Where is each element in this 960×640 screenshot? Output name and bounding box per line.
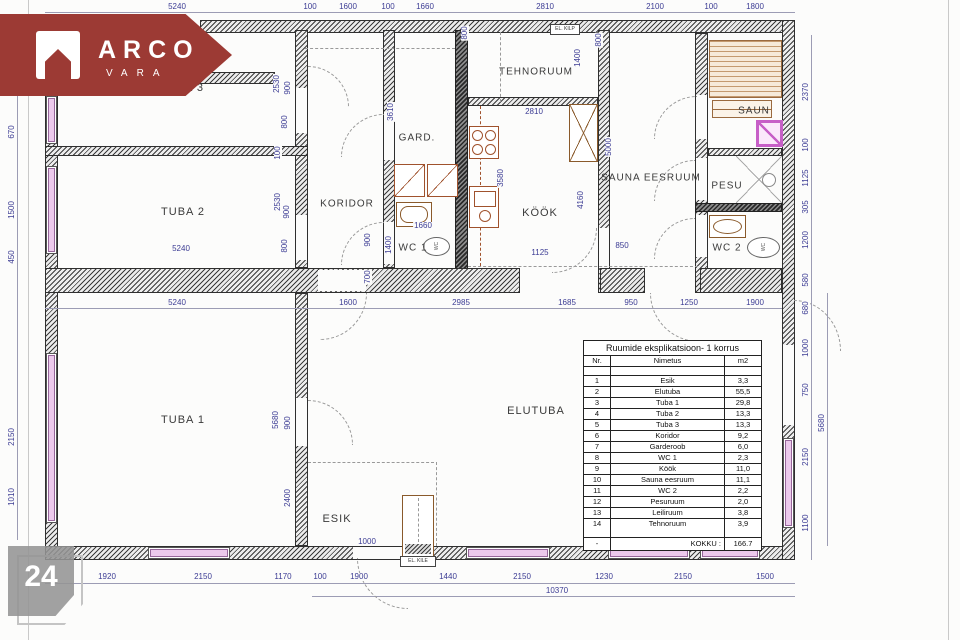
room-area: 11,1 (725, 475, 761, 485)
room-name: Elutuba (610, 387, 725, 397)
dimension-label: 1800 (745, 3, 765, 11)
dimension-label: 5240 (171, 245, 191, 253)
table-total-row: - KOKKU : 166.7 (584, 538, 761, 550)
dimension-label: 2150 (673, 573, 693, 581)
room-area: 2,3 (725, 453, 761, 463)
room-area: 6,0 (725, 442, 761, 452)
chimney-icon (402, 495, 434, 557)
dashed-line (305, 48, 455, 49)
table-row: 5Tuba 313,3 (584, 420, 761, 431)
window (46, 353, 57, 523)
room-nr: 8 (584, 453, 610, 463)
drawing-frame-line (28, 0, 29, 640)
dimension-label: 5240 (167, 3, 187, 11)
page-number-badge: 24 (8, 546, 74, 616)
dimension-label: 1660 (413, 222, 433, 230)
wall-segment (695, 203, 782, 212)
dimension-label: 100 (302, 3, 317, 11)
window (783, 438, 794, 528)
room-nr: 10 (584, 475, 610, 485)
drawing-frame-line (948, 0, 949, 640)
dimension-label: 850 (614, 242, 629, 250)
table-title: Ruumide eksplikatsioon- 1 korrus (584, 341, 761, 356)
room-area: 9,2 (725, 431, 761, 441)
total-label: KOKKU : (610, 538, 725, 550)
room-name: Tuba 3 (610, 420, 725, 430)
dashed-line (468, 266, 698, 267)
sauna-heater-icon (756, 120, 783, 147)
dimension-label: 2150 (8, 427, 16, 447)
dimension-label: 450 (8, 249, 16, 264)
door-arc (341, 114, 384, 157)
table-row: 1Esik3,3 (584, 376, 761, 387)
room-area: 3,3 (725, 376, 761, 386)
dimension-label: 1000 (357, 538, 377, 546)
table-row: 6Koridor9,2 (584, 431, 761, 442)
dimension-label: 2530 (274, 192, 282, 212)
arco-vara-logo: ARCO VARA (0, 14, 232, 96)
table-row: 2Elutuba55,5 (584, 387, 761, 398)
room-label-elutuba: ELUTUBA (507, 405, 565, 417)
room-name: Garderoob (610, 442, 725, 452)
dimension-label: 1660 (415, 3, 435, 11)
dimension-label: 3580 (497, 168, 505, 188)
room-label-pesu: PESU (711, 181, 742, 192)
dimension-label: 1900 (745, 299, 765, 307)
table-blank-row (584, 367, 761, 376)
room-nr: 7 (584, 442, 610, 452)
room-area: 55,5 (725, 387, 761, 397)
room-name: Koridor (610, 431, 725, 441)
dimension-label: 1000 (802, 338, 810, 358)
dimension-line (17, 96, 18, 540)
dimension-label: 2985 (451, 299, 471, 307)
house-icon (36, 31, 80, 79)
room-explication-table: Ruumide eksplikatsioon- 1 korrus Nr. Nim… (583, 340, 762, 551)
room-nr: 2 (584, 387, 610, 397)
floor-plan-canvas: WC WC EL. KILP EL. KILE ARCO VARA 24 Ruu… (0, 0, 960, 640)
table-row: 12Pesuruum2,0 (584, 497, 761, 508)
dimension-label: 700 (364, 269, 372, 284)
wall-segment (600, 268, 645, 293)
room-nr: 1 (584, 376, 610, 386)
room-name: Leiliruum (610, 508, 725, 518)
dimension-label: 900 (284, 80, 292, 95)
dimension-label: 100 (274, 145, 282, 160)
wall-segment (45, 146, 308, 156)
table-row: 13Leiliruum3,8 (584, 508, 761, 519)
door-opening (696, 215, 707, 257)
wall-segment (700, 268, 782, 293)
room-name: Esik (610, 376, 725, 386)
table-header-row: Nr. Nimetus m2 (584, 356, 761, 367)
toilet-label: WC (434, 242, 440, 250)
dimension-label: 1900 (349, 573, 369, 581)
dimension-label: 2100 (645, 3, 665, 11)
room-nr: 14 (584, 519, 610, 529)
page-number: 24 (8, 560, 74, 594)
window (148, 547, 230, 559)
kitchen-sink-icon (469, 186, 499, 228)
dimension-label: 750 (802, 382, 810, 397)
dimension-label: 1100 (802, 513, 810, 532)
dimension-label: 4160 (577, 190, 585, 210)
table-row: 10Sauna eesruum11,1 (584, 475, 761, 486)
dimension-label: 2810 (524, 108, 544, 116)
table-row: 4Tuba 213,3 (584, 409, 761, 420)
dimension-label: 1440 (438, 573, 458, 581)
dimension-label: 800 (595, 32, 603, 47)
dimension-line (811, 35, 812, 560)
dimension-label: 680 (802, 300, 810, 315)
room-nr: 12 (584, 497, 610, 507)
dimension-label: 100 (802, 137, 810, 152)
room-name: WC 2 (610, 486, 725, 496)
door-opening (696, 95, 707, 139)
room-label-k-k: KÖÖK (522, 207, 558, 219)
wall-segment (200, 20, 795, 33)
dashed-line (436, 462, 437, 546)
dimension-label: 2810 (535, 3, 555, 11)
dimension-line (45, 583, 795, 584)
table-row: 11WC 22,2 (584, 486, 761, 497)
dimension-label: 1600 (338, 3, 358, 11)
room-name: Tuba 2 (610, 409, 725, 419)
dimension-label: 5000 (605, 137, 613, 157)
room-name: WC 1 (610, 453, 725, 463)
shower-icon (736, 156, 782, 203)
room-label-wc-2: WC 2 (713, 243, 742, 254)
dimension-label: 305 (802, 199, 810, 214)
dashed-line (308, 462, 434, 463)
dimension-label: 2150 (512, 573, 532, 581)
door-opening (318, 270, 366, 291)
dimension-label: 1010 (8, 487, 16, 507)
door-arc (654, 96, 697, 139)
room-label-koridor: KORIDOR (320, 199, 374, 210)
dimension-label: 800 (281, 238, 289, 253)
dimension-label: 2150 (193, 573, 213, 581)
dimension-label: 1400 (385, 235, 393, 255)
dimension-label: 10370 (545, 587, 569, 595)
back-door-opening (783, 345, 794, 425)
room-nr: 11 (584, 486, 610, 496)
total-value: 166.7 (725, 538, 761, 550)
dimension-label: 580 (802, 272, 810, 287)
dimension-label: 2400 (284, 488, 292, 508)
door-arc (308, 400, 353, 445)
toilet-label: WC (761, 243, 767, 251)
table-header-nimetus: Nimetus (610, 356, 725, 366)
room-nr: 3 (584, 398, 610, 408)
window (46, 166, 57, 254)
room-nr: 13 (584, 508, 610, 518)
room-label-wc-1: WC 1 (399, 243, 428, 254)
dimension-label: 2150 (802, 447, 810, 467)
room-label-tuba-2: TUBA 2 (161, 206, 205, 218)
dimension-label: 2370 (802, 82, 810, 102)
door-opening (296, 88, 307, 133)
room-label-tuba-1: TUBA 1 (161, 414, 205, 426)
room-name: Tuba 1 (610, 398, 725, 408)
dimension-label: 1200 (802, 230, 810, 250)
dimension-label: 1250 (679, 299, 699, 307)
table-row: 7Garderoob6,0 (584, 442, 761, 453)
table-header-m2: m2 (725, 356, 761, 366)
dimension-label: 1400 (574, 48, 582, 68)
room-name: Tehnoruum (610, 519, 725, 529)
wall-segment (455, 30, 468, 293)
room-area: 3,9 (725, 519, 761, 529)
room-name: Pesuruum (610, 497, 725, 507)
window (46, 96, 57, 144)
room-area: 2,2 (725, 486, 761, 496)
table-body: 1Esik3,32Elutuba55,53Tuba 129,84Tuba 213… (584, 376, 761, 529)
table-blank-row (584, 529, 761, 538)
dimension-label: 800 (461, 25, 469, 40)
dimension-label: 1500 (755, 573, 775, 581)
dimension-label: 950 (623, 299, 638, 307)
dimension-label: 1920 (97, 573, 117, 581)
door-arc (654, 218, 695, 259)
dimension-label: 1600 (338, 299, 358, 307)
dimension-label: 1230 (594, 573, 614, 581)
room-name: Sauna eesruum (610, 475, 725, 485)
room-area: 3,8 (725, 508, 761, 518)
room-label-saun: SAUN (738, 106, 770, 117)
dimension-label: 1125 (802, 168, 810, 187)
dimension-label: 1170 (273, 573, 292, 581)
room-area: 13,3 (725, 409, 761, 419)
door-opening (599, 228, 609, 268)
dimension-label: 670 (8, 124, 16, 139)
dimension-label: 100 (312, 573, 327, 581)
logo-sub-text: VARA (106, 68, 169, 79)
total-nr: - (584, 538, 610, 550)
table-row: 3Tuba 129,8 (584, 398, 761, 409)
room-nr: 9 (584, 464, 610, 474)
dimension-label: 100 (380, 3, 395, 11)
door-arc (308, 66, 349, 107)
dimension-label: 1125 (530, 249, 549, 257)
room-label-gard-: GARD. (399, 133, 436, 144)
room-area: 11,0 (725, 464, 761, 474)
dimension-label: 5240 (167, 299, 187, 307)
room-nr: 6 (584, 431, 610, 441)
room-name: Köök (610, 464, 725, 474)
room-area: 2,0 (725, 497, 761, 507)
dimension-line (45, 12, 795, 13)
room-label-sauna-eesruum: SAUNA EESRUUM (601, 173, 701, 184)
dimension-label: 900 (283, 204, 291, 219)
dimension-label: 5680 (272, 410, 280, 430)
dimension-label: 1685 (557, 299, 577, 307)
dimension-label: 1500 (8, 200, 16, 220)
table-row: 9Köök11,0 (584, 464, 761, 475)
dimension-label: 900 (364, 232, 372, 247)
room-nr: 4 (584, 409, 610, 419)
table-row: 14Tehnoruum3,9 (584, 519, 761, 529)
logo-brand-text: ARCO (98, 36, 200, 65)
chimney-label: EL. KILE (400, 556, 436, 567)
window (466, 547, 550, 559)
door-opening (296, 398, 307, 446)
stove-icon (469, 126, 499, 159)
dimension-label: 2530 (273, 74, 281, 94)
room-area: 29,8 (725, 398, 761, 408)
dimension-label: 800 (281, 114, 289, 129)
electrical-panel-label: EL. KILP (550, 24, 580, 35)
bathroom-sink-icon (709, 215, 746, 238)
door-opening (296, 215, 307, 260)
dimension-label: 100 (703, 3, 718, 11)
dimension-label: 5680 (818, 413, 826, 433)
room-area: 13,3 (725, 420, 761, 430)
dimension-label: 3610 (387, 102, 395, 122)
sauna-bench-icon (709, 40, 782, 98)
wall-segment (708, 148, 782, 156)
room-label-tehnoruum: TEHNORUUM (499, 67, 573, 78)
table-row: 8WC 12,3 (584, 453, 761, 464)
wall-segment (45, 268, 520, 293)
room-nr: 5 (584, 420, 610, 430)
table-header-nr: Nr. (584, 356, 610, 366)
room-label-esik: ESIK (322, 513, 351, 525)
wardrobe-icon (427, 164, 458, 197)
appliance-icon (569, 104, 598, 162)
dimension-label: 900 (284, 415, 292, 430)
wardrobe-icon (394, 164, 425, 197)
